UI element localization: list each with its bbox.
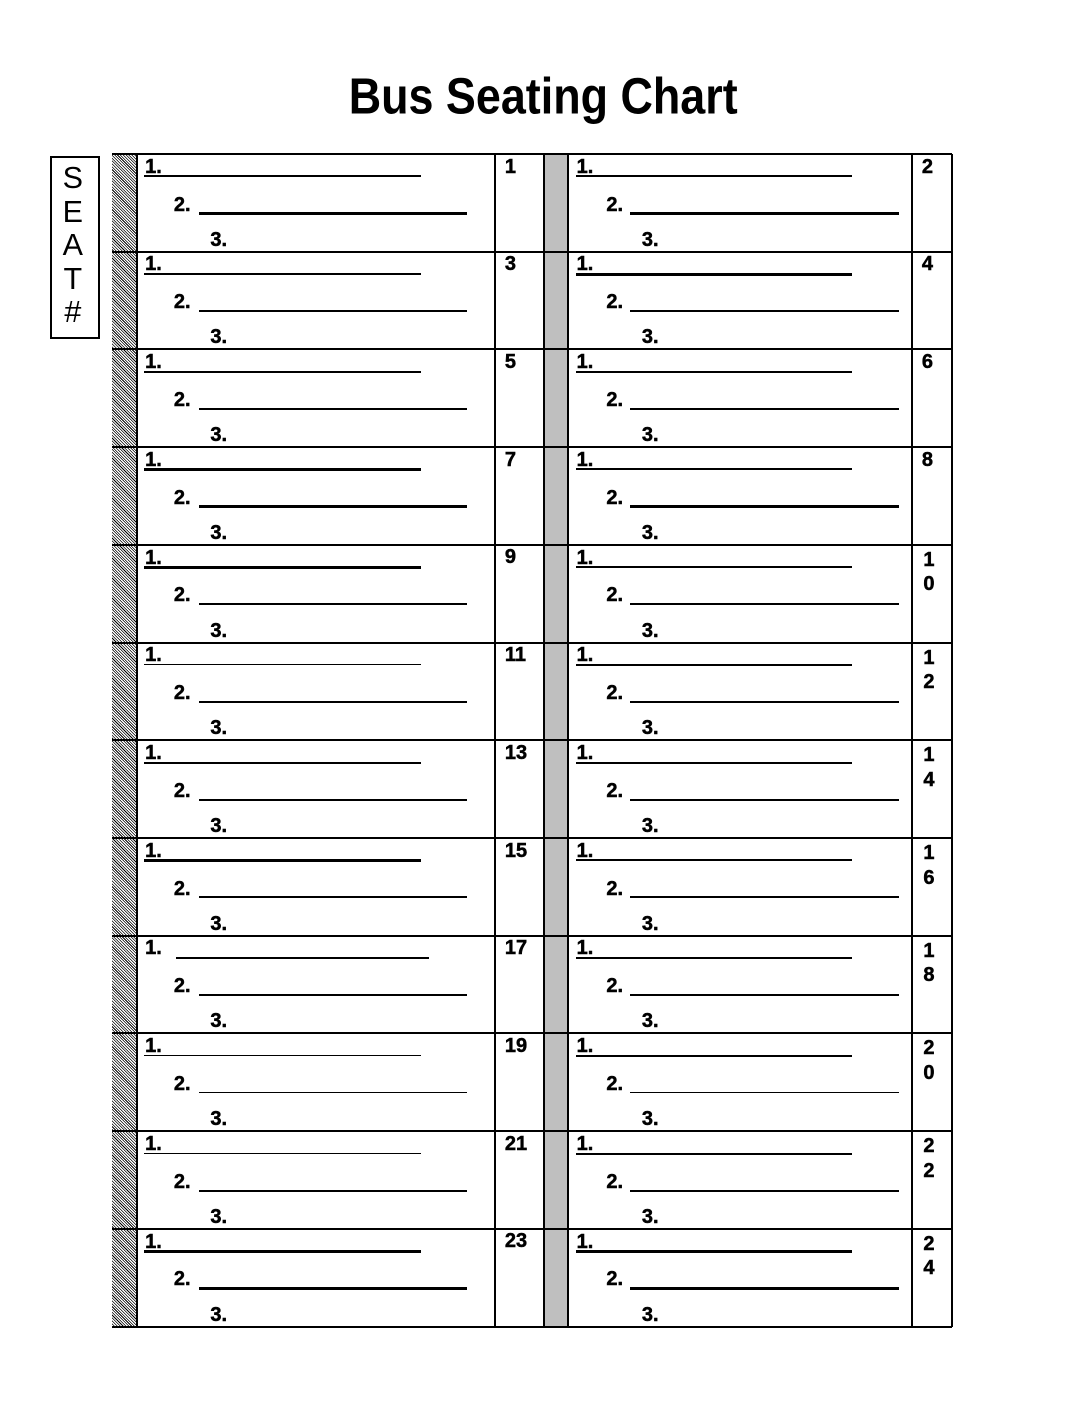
- svg-text:Bus Seating Chart: Bus Seating Chart: [349, 68, 738, 125]
